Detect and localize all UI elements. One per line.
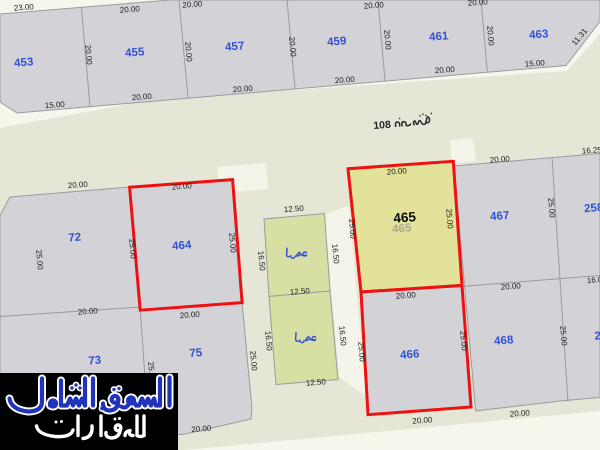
svg-text:20.00: 20.00 [119,4,140,15]
svg-text:20.00: 20.00 [182,0,203,10]
svg-text:20.00: 20.00 [509,408,530,419]
svg-text:20.00: 20.00 [500,281,521,292]
svg-text:12.50: 12.50 [283,204,304,215]
svg-text:23.00: 23.00 [13,2,34,13]
svg-text:20.00: 20.00 [382,29,393,50]
svg-text:12.50: 12.50 [305,377,326,388]
svg-text:20.00: 20.00 [485,25,496,46]
svg-text:25.00: 25.00 [546,197,557,218]
svg-text:20.00: 20.00 [83,44,94,65]
svg-text:16.50: 16.50 [337,325,348,346]
svg-text:20.00: 20.00 [171,181,192,192]
svg-text:12.50: 12.50 [289,286,310,297]
svg-text:20.00: 20.00 [287,36,298,57]
svg-text:20.00: 20.00 [386,166,407,177]
svg-text:25.00: 25.00 [34,249,45,270]
svg-text:20.00: 20.00 [395,290,416,301]
svg-text:459: 459 [327,35,347,48]
svg-text:20.00: 20.00 [363,0,384,11]
svg-text:72: 72 [68,232,82,245]
svg-text:75: 75 [189,347,203,360]
svg-text:15.00: 15.00 [44,100,65,111]
svg-text:20.00: 20.00 [412,415,433,426]
svg-text:457: 457 [225,40,245,53]
svg-text:25.00: 25.00 [248,350,259,371]
svg-text:466: 466 [400,348,420,361]
svg-text:463: 463 [529,28,549,41]
svg-text:2: 2 [594,330,600,342]
svg-text:453: 453 [14,56,34,69]
svg-text:108: 108 [373,119,392,132]
svg-text:20.00: 20.00 [191,424,212,435]
svg-text:464: 464 [172,239,193,253]
svg-text:73: 73 [88,355,102,368]
svg-text:25.00: 25.00 [127,238,138,259]
svg-text:20.00: 20.00 [179,310,200,321]
svg-text:15.00: 15.00 [524,58,545,69]
svg-text:455: 455 [125,46,146,60]
svg-text:20.00: 20.00 [131,92,152,103]
svg-text:20.00: 20.00 [434,65,455,76]
svg-text:20.00: 20.00 [67,180,88,191]
svg-text:16.50: 16.50 [256,250,267,271]
svg-text:25.00: 25.00 [458,330,469,351]
svg-text:25.00: 25.00 [347,218,358,239]
svg-text:25.00: 25.00 [356,341,367,362]
svg-text:467: 467 [490,210,510,223]
svg-text:16.50: 16.50 [330,243,341,264]
svg-text:25.00: 25.00 [227,232,238,253]
svg-text:20.00: 20.00 [489,154,510,165]
svg-text:461: 461 [429,30,450,44]
svg-text:16.00: 16.00 [586,275,600,286]
svg-text:16.50: 16.50 [263,330,274,351]
svg-text:465: 465 [393,209,417,226]
svg-text:468: 468 [494,334,515,348]
svg-text:25.00: 25.00 [444,208,455,229]
svg-text:16.25: 16.25 [581,145,600,156]
svg-text:258: 258 [584,202,600,216]
svg-text:20.00: 20.00 [232,84,253,95]
svg-text:20.00: 20.00 [183,41,194,62]
svg-text:25.00: 25.00 [558,325,569,346]
svg-text:20.00: 20.00 [77,306,98,317]
svg-text:20.00: 20.00 [334,75,355,86]
